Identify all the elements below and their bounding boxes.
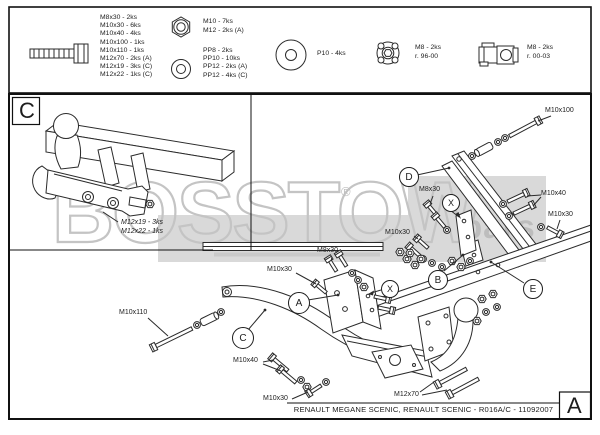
- part-label-m10x30: M10x30: [548, 211, 573, 219]
- part-label-m10x30: M10x30: [385, 229, 410, 237]
- bolt-size-item: M10x30 - 6ks: [100, 22, 141, 30]
- crossbar-profile: [203, 243, 383, 257]
- revision-letter-a: A: [567, 393, 582, 419]
- part-label-m8x30: M8x30: [317, 247, 338, 255]
- part-label-m10x40: M10x40: [233, 357, 258, 365]
- bolt-size-item: M10x110 - 1ks: [100, 47, 144, 55]
- flange-nut-icon: [377, 42, 399, 64]
- callout-c: C: [232, 327, 254, 349]
- cage-nut-label: M8 - 2ks: [527, 44, 553, 52]
- part-label-m12x70: M12x70: [394, 391, 419, 399]
- cage-nut-icon: [479, 43, 518, 66]
- drawing-title: RENAULT MEGANE SCENIC, RENAULT SCENIC - …: [288, 405, 559, 414]
- washer-icon: [172, 60, 191, 79]
- callout-x-upper: X: [442, 194, 460, 212]
- flange-nut-years: r. 96-00: [415, 53, 438, 61]
- cage-nut-years: r. 00-03: [527, 53, 550, 61]
- washer-size-item: PP12 - 4ks (C): [203, 72, 248, 80]
- nut-size-item: M10 - 7ks: [203, 18, 233, 26]
- part-label-m10x40: M10x40: [541, 190, 566, 198]
- bolt-size-item: M12x70 - 2ks (A): [100, 55, 152, 63]
- washer-size-item: PP12 - 2ks (A): [203, 63, 247, 71]
- ball-neck: [55, 135, 81, 169]
- bolt-size-item: M8x30 - 2ks: [100, 14, 137, 22]
- bolt-size-item: M12x19 - 3ks (C): [100, 63, 152, 71]
- part-label-m10x30: M10x30: [263, 395, 288, 403]
- callout-b: B: [428, 270, 448, 290]
- callout-e: E: [523, 279, 543, 299]
- plate-washer-icon: [276, 40, 306, 70]
- nut-icon: [172, 17, 189, 37]
- part-label-m10x30: M10x30: [267, 266, 292, 274]
- ball-mount-assembly: [418, 298, 478, 371]
- part-label-m10x110: M10x110: [119, 309, 147, 317]
- bolt-icon: [30, 44, 88, 63]
- plate-washer-label: P10 - 4ks: [317, 50, 346, 58]
- washer-size-item: PP8 - 2ks: [203, 47, 232, 55]
- diagram-line-art: [0, 0, 600, 435]
- nut-size-item: M12 - 2ks (A): [203, 27, 244, 35]
- part-label-m10x100: M10x100: [545, 107, 574, 115]
- bolt-size-item: M10x40 - 4ks: [100, 30, 141, 38]
- clamp-body: [46, 170, 148, 216]
- flange-nut-label: M8 - 2ks: [415, 44, 441, 52]
- washer-size-item: PP10 - 10ks: [203, 55, 240, 63]
- part-label-m12x19: M12x19 - 3ks: [121, 219, 163, 227]
- leader-dots: [264, 167, 493, 312]
- bracket-a: [324, 270, 381, 333]
- section-c-letter: C: [19, 98, 35, 124]
- main-beam: [371, 225, 591, 317]
- bolt-size-item: M12x22 - 1ks (C): [100, 71, 152, 79]
- section-c-drawing: [33, 114, 234, 217]
- callout-x-lower: X: [381, 280, 399, 298]
- callout-d: D: [399, 167, 419, 187]
- part-label-m12x22: M12x22 - 1ks: [121, 228, 163, 236]
- callout-a: A: [288, 292, 310, 314]
- towbar-instruction-sheet: BOSSTOW bars ®: [0, 0, 600, 435]
- part-label-m8x30: M8x30: [419, 186, 440, 194]
- bolt-size-item: M10x100 - 1ks: [100, 39, 145, 47]
- tow-ball: [54, 114, 79, 139]
